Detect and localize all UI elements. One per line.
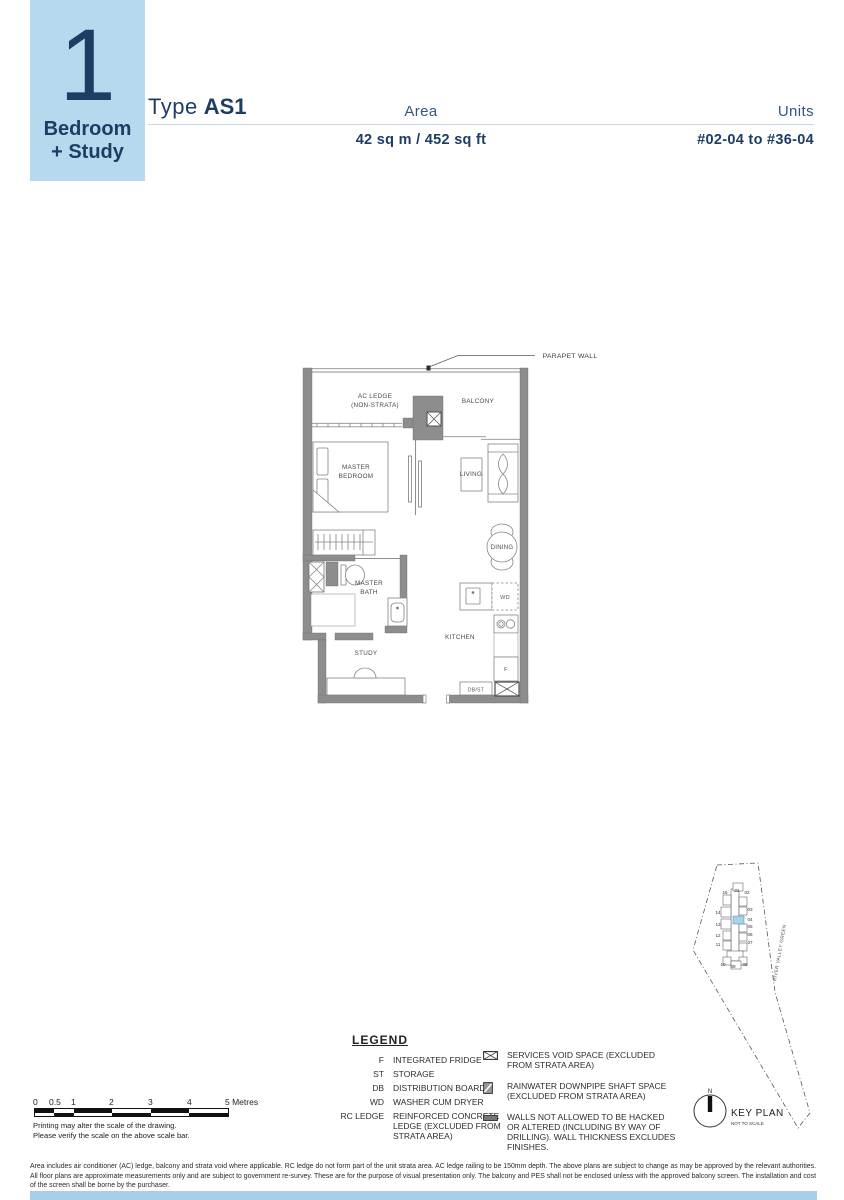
label-master-bedroom-1: MASTER [342, 464, 370, 471]
floorplan-page: 1 Bedroom + Study TypeAS1 Area Units 42 … [0, 0, 844, 1200]
scalebar-labels: 0 0.5 1 2 3 4 5 Metres [30, 1097, 270, 1107]
label-living: LIVING [460, 471, 482, 478]
unit-05: 05 [747, 924, 753, 929]
unit-09: 09 [730, 964, 736, 969]
services-void-box-top [427, 412, 441, 426]
unit-04: 04 [747, 917, 753, 922]
legend-symbol-desc: WALLS NOT ALLOWED TO BE HACKED OR ALTERE… [507, 1112, 679, 1152]
type-title: TypeAS1 [148, 94, 247, 120]
rainwater-downpipe-icon [483, 1081, 507, 1101]
unit-06: 06 [747, 932, 753, 937]
hob [494, 615, 518, 633]
scale-tick: 5 Metres [225, 1097, 258, 1107]
keyplan-title: KEY PLAN [731, 1108, 784, 1119]
label-balcony: BALCONY [462, 398, 495, 405]
kitchen-sink-counter [460, 583, 492, 610]
highlighted-unit [733, 916, 744, 924]
legend-symbol-desc: SERVICES VOID SPACE (EXCLUDED FROM STRAT… [507, 1050, 679, 1070]
label-wd: WD [500, 595, 510, 601]
legend-abbr: DB [318, 1083, 384, 1093]
kitchen-counter [494, 633, 518, 657]
keyplan-subtitle: NOT TO SCALE [731, 1121, 764, 1126]
unit-07: 07 [747, 940, 753, 945]
unit-13: 13 [715, 922, 721, 927]
scale-tick: 1 [71, 1097, 76, 1107]
services-void-icon [483, 1050, 507, 1070]
scale-bar [35, 1109, 228, 1116]
unit-03: 03 [747, 907, 753, 912]
scale-note-2: Please verify the scale on the above sca… [33, 1131, 190, 1140]
unit-01: 01 [734, 888, 740, 893]
area-label: Area [350, 103, 492, 120]
unit-12: 12 [715, 933, 721, 938]
unit-count: 1 [30, 14, 145, 116]
unit-type-badge: 1 Bedroom + Study [30, 0, 145, 181]
bath-shaft [309, 562, 324, 592]
type-prefix: Type [148, 94, 198, 119]
sofa [488, 444, 518, 502]
study-desk [327, 668, 405, 695]
legend-symbols: SERVICES VOID SPACE (EXCLUDED FROM STRAT… [483, 1050, 683, 1163]
label-kitchen: KITCHEN [445, 634, 475, 641]
scale-tick: 4 [187, 1097, 192, 1107]
scale-tick: 3 [148, 1097, 153, 1107]
label-master-bath-2: BATH [360, 589, 378, 596]
legend-title: LEGEND [352, 1033, 518, 1047]
legend-symbol-item: RAINWATER DOWNPIPE SHAFT SPACE (EXCLUDED… [483, 1081, 683, 1101]
legend-symbol-item: SERVICES VOID SPACE (EXCLUDED FROM STRAT… [483, 1050, 683, 1070]
legend-abbr: ST [318, 1069, 384, 1079]
furniture [309, 442, 519, 696]
footer-accent-bar [30, 1191, 817, 1200]
services-void-box-bottom [495, 682, 519, 696]
north-label: N [708, 1089, 712, 1095]
unit-08: 08 [742, 962, 748, 967]
scale-tick: 0.5 [49, 1097, 61, 1107]
unit-10: 10 [720, 962, 726, 967]
header-divider [148, 124, 814, 125]
label-master-bedroom-2: BEDROOM [339, 473, 374, 480]
shower-area [311, 594, 355, 626]
key-plan: 15 01 02 14 03 13 04 05 12 06 11 07 10 0… [683, 853, 843, 1153]
label-ac-ledge-2: (NON-STRATA) [351, 402, 399, 409]
label-parapet-wall: PARAPET WALL [543, 353, 598, 360]
disclaimer-text: Area includes air conditioner (AC) ledge… [30, 1162, 816, 1191]
legend-symbol-item: WALLS NOT ALLOWED TO BE HACKED OR ALTERE… [483, 1112, 683, 1152]
label-ac-ledge-1: AC LEDGE [358, 393, 392, 400]
scale-note-1: Printing may alter the scale of the draw… [33, 1121, 177, 1130]
unit-02: 02 [744, 890, 750, 895]
street-label: RIVER VALLEY GREEN [772, 924, 788, 982]
legend-abbr: RC LEDGE [318, 1111, 384, 1141]
label-fridge: F [504, 667, 508, 673]
entry-door-jambs [423, 695, 450, 703]
wall-no-hack-icon [483, 1112, 507, 1152]
wardrobe [313, 530, 375, 555]
unit-14: 14 [715, 910, 721, 915]
building-footprint [721, 883, 747, 969]
label-dbst: DB/ST [468, 688, 484, 694]
unit-11: 11 [716, 942, 721, 947]
legend-symbol-desc: RAINWATER DOWNPIPE SHAFT SPACE (EXCLUDED… [507, 1081, 679, 1101]
legend-abbr: F [318, 1055, 384, 1065]
unit-15: 15 [722, 890, 728, 895]
label-dining: DINING [491, 545, 514, 551]
label-study: STUDY [355, 650, 378, 657]
scale-tick: 2 [109, 1097, 114, 1107]
units-label: Units [714, 103, 814, 120]
units-value: #02-04 to #36-04 [640, 132, 814, 148]
vanity-sink [388, 598, 407, 626]
label-master-bath-1: MASTER [355, 580, 383, 587]
floorplan-drawing: PARAPET WALL AC LEDGE (NON-STRATA) BALCO… [295, 348, 605, 713]
unit-type-line1: Bedroom [30, 118, 145, 141]
legend-abbr: WD [318, 1097, 384, 1107]
north-compass-icon: N [694, 1089, 726, 1127]
unit-type-line2: + Study [30, 141, 145, 164]
type-value: AS1 [204, 94, 247, 119]
room-labels: PARAPET WALL AC LEDGE (NON-STRATA) BALCO… [339, 353, 598, 694]
area-value: 42 sq m / 452 sq ft [330, 132, 512, 148]
scale-tick: 0 [33, 1097, 38, 1107]
